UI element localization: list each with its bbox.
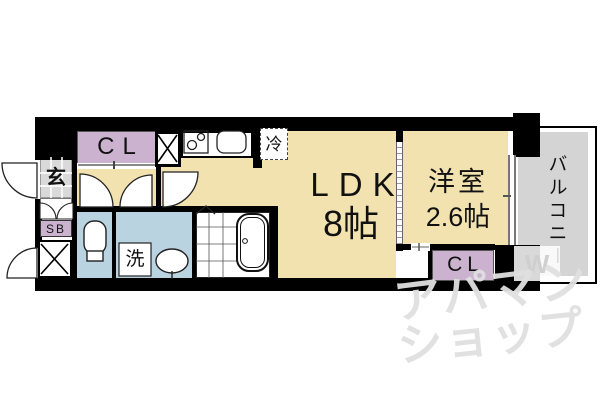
- western-room-name: 洋室: [410, 166, 506, 198]
- wash-basin-icon: [156, 249, 188, 279]
- bathroom-folding-door-icon: [196, 206, 215, 214]
- bathroom-tile-grid: [196, 212, 237, 278]
- western-room-size: 2.6帖: [406, 200, 510, 234]
- ldk-name: LDK: [285, 165, 420, 203]
- entrance-door-arc: [2, 163, 37, 198]
- floor-plan: CL 冷 玄 SB 洗 LDK 8帖 洋室 2.6帖 CL バルコニー W アパ…: [0, 0, 600, 400]
- service-door-arc: [7, 248, 37, 278]
- closet-top-label: CL: [77, 131, 156, 162]
- entrance-label: 玄: [40, 160, 72, 196]
- bathtub-icon: [237, 214, 268, 271]
- entrance-step-arcs: [40, 203, 73, 219]
- ldk-door-arc: [163, 172, 198, 207]
- toilet-door-arc: [80, 174, 113, 207]
- kitchen-sink-icon: [217, 131, 246, 153]
- washroom-door-arc: [120, 175, 152, 207]
- stove-icon: [184, 131, 208, 153]
- washer-label: 洗: [119, 243, 151, 276]
- refrigerator-label: 冷: [260, 128, 288, 160]
- shoe-box-label: SB: [40, 220, 72, 237]
- ldk-size: 8帖: [285, 203, 417, 245]
- toilet-icon: [84, 221, 106, 261]
